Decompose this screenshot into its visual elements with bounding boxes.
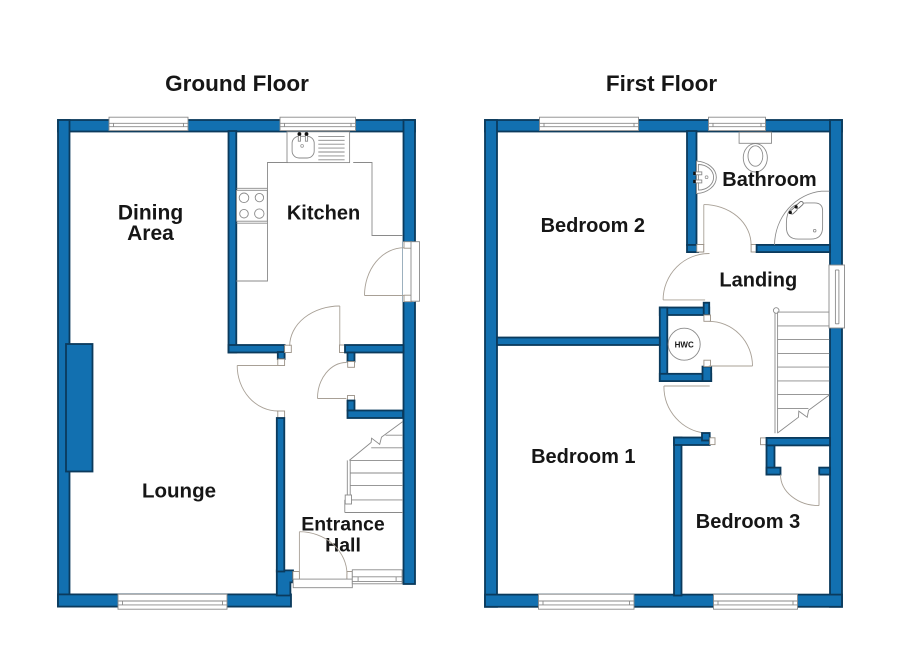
- svg-text:Kitchen: Kitchen: [287, 203, 360, 225]
- svg-text:Lounge: Lounge: [142, 480, 216, 503]
- svg-text:Bathroom: Bathroom: [722, 169, 816, 191]
- svg-text:Entrance: Entrance: [301, 514, 385, 536]
- svg-text:Bedroom 2: Bedroom 2: [541, 215, 645, 237]
- svg-text:HWC: HWC: [675, 340, 694, 349]
- svg-text:Bedroom 1: Bedroom 1: [531, 446, 635, 468]
- svg-text:Landing: Landing: [719, 270, 797, 292]
- svg-text:Area: Area: [127, 222, 174, 245]
- svg-text:First Floor: First Floor: [606, 71, 717, 96]
- svg-text:Bedroom 3: Bedroom 3: [696, 511, 800, 533]
- svg-text:Ground Floor: Ground Floor: [165, 71, 309, 96]
- svg-text:Hall: Hall: [325, 535, 361, 557]
